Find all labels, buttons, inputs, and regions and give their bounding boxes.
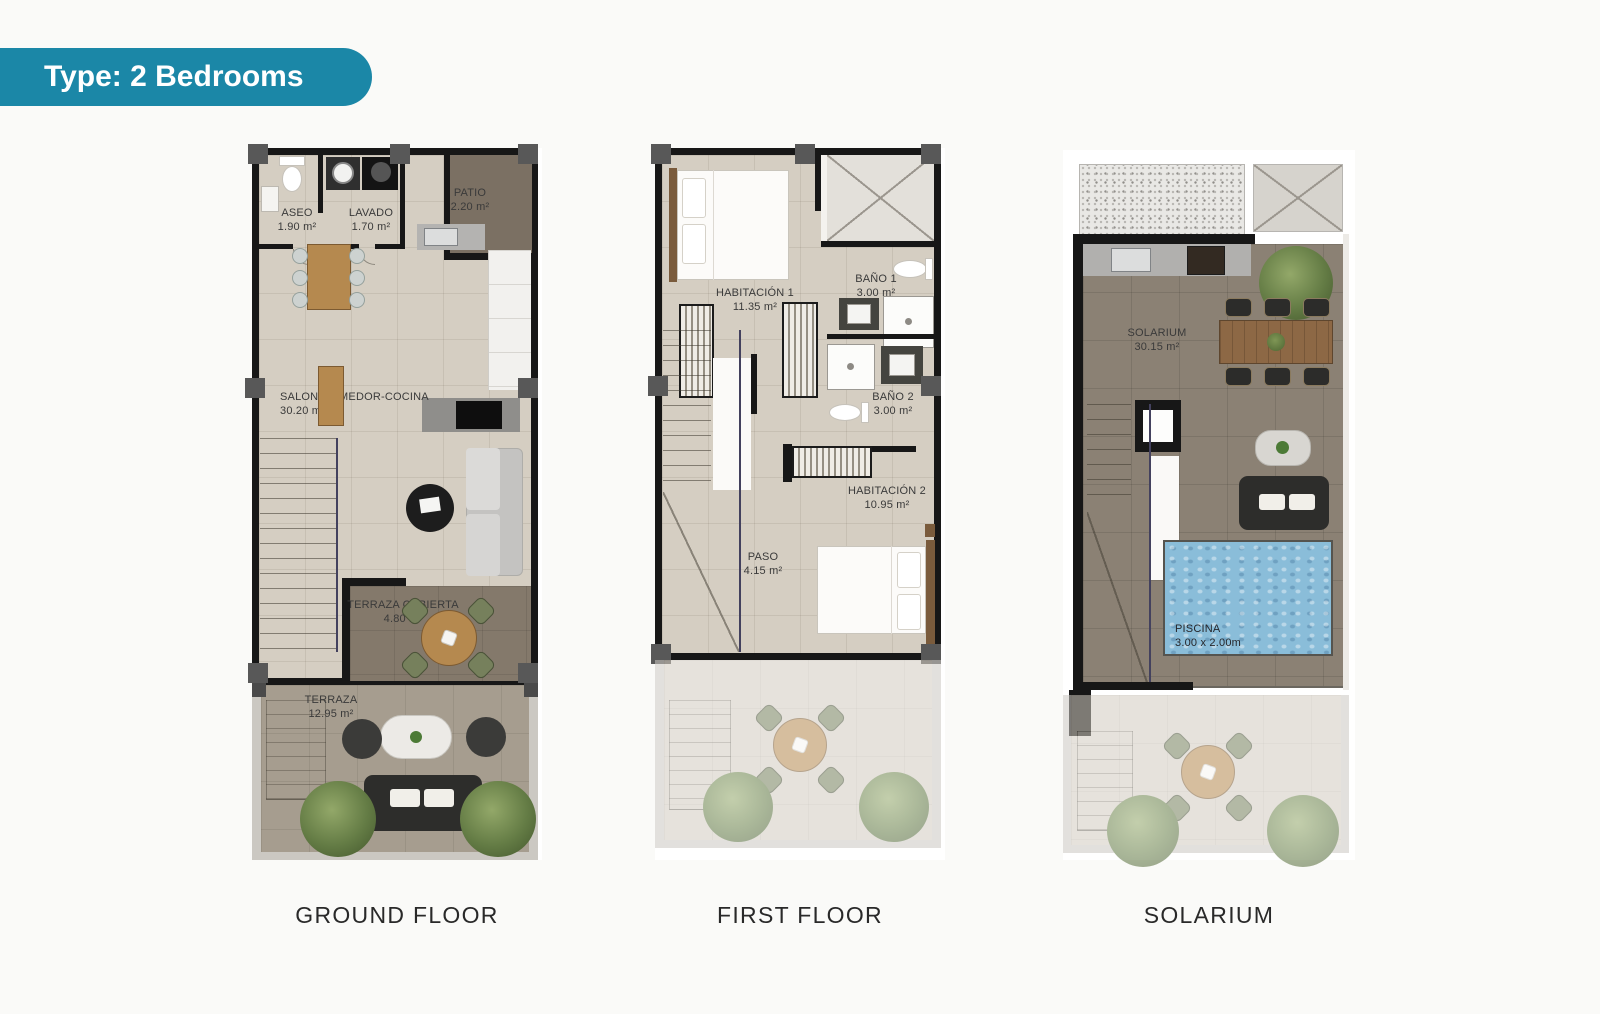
toilet-tank bbox=[279, 156, 305, 166]
toilet-bowl bbox=[282, 166, 302, 192]
wall-light bbox=[1343, 234, 1349, 690]
room-area: 1.90 m² bbox=[278, 221, 317, 233]
terrace-wall-light bbox=[655, 660, 664, 848]
pillar bbox=[648, 376, 668, 396]
toilet-bowl bbox=[893, 260, 927, 278]
terrace-wall bbox=[342, 578, 350, 680]
staircase bbox=[1087, 404, 1131, 508]
void-area bbox=[1253, 164, 1343, 232]
sofa-cushion bbox=[424, 789, 454, 807]
type-badge-label: Type: 2 Bedrooms bbox=[44, 60, 304, 93]
outdoor-sink bbox=[1111, 248, 1151, 272]
washbasin bbox=[847, 304, 871, 324]
shower-drain bbox=[847, 363, 854, 370]
terrace-section: TERRAZA 12.95 m² bbox=[252, 685, 538, 860]
wall-aseo bbox=[318, 155, 323, 213]
first-floor-plan: HABITACIÓN 1 11.35 m² BAÑO 1 3.00 m² BAÑ… bbox=[655, 148, 945, 860]
dining-chair bbox=[349, 292, 365, 308]
room-area: 11.35 m² bbox=[733, 301, 777, 313]
dining-chair bbox=[349, 270, 365, 286]
dining-chair bbox=[1225, 367, 1252, 386]
wall-segment bbox=[1073, 234, 1255, 244]
dining-chair bbox=[1303, 367, 1330, 386]
pillar bbox=[518, 663, 538, 683]
wall-segment bbox=[872, 446, 916, 452]
exterior-wall bbox=[1073, 234, 1083, 690]
gravel-area bbox=[1079, 164, 1245, 236]
ghost-terrace bbox=[655, 660, 941, 860]
duvet-line bbox=[713, 170, 714, 280]
stair-rail bbox=[336, 438, 338, 652]
room-area: 3.00 m² bbox=[874, 405, 913, 417]
wardrobe bbox=[782, 302, 818, 398]
caption-ground-floor: GROUND FLOOR bbox=[252, 902, 542, 929]
skylight bbox=[1143, 410, 1173, 442]
pillar bbox=[795, 144, 815, 164]
toilet-bowl bbox=[829, 404, 861, 421]
room-name: SALON-COMEDOR-COCINA bbox=[280, 391, 429, 403]
terrace-pillar bbox=[252, 683, 266, 697]
caption-first-floor: FIRST FLOOR bbox=[655, 902, 945, 929]
dryer-drum bbox=[371, 162, 391, 182]
dining-chair bbox=[292, 270, 308, 286]
pillow bbox=[682, 224, 706, 264]
plant bbox=[1107, 795, 1179, 867]
pillow bbox=[897, 594, 921, 630]
outdoor-counter bbox=[1083, 244, 1251, 276]
wall-segment bbox=[783, 444, 792, 482]
room-area: 10.95 m² bbox=[864, 499, 909, 511]
dining-chair bbox=[292, 292, 308, 308]
wall-segment bbox=[821, 241, 934, 247]
room-label-piscina: PISCINA 3.00 x 2.00m bbox=[1175, 622, 1295, 651]
pillar bbox=[921, 376, 941, 396]
washbasin bbox=[889, 354, 915, 376]
pillar bbox=[921, 144, 941, 164]
pouf bbox=[342, 719, 382, 759]
stair-rail bbox=[739, 330, 741, 652]
staircase bbox=[260, 438, 338, 652]
stair-void bbox=[713, 358, 751, 490]
corridor-wardrobe bbox=[792, 446, 872, 478]
room-label-solarium: SOLARIUM 30.15 m² bbox=[1105, 326, 1209, 355]
pillar bbox=[651, 144, 671, 164]
dining-chair bbox=[1264, 367, 1291, 386]
sofa-cushion bbox=[390, 789, 420, 807]
room-name: HABITACIÓN 2 bbox=[848, 485, 926, 497]
pouf bbox=[466, 717, 506, 757]
sofa-cushion bbox=[1289, 494, 1315, 510]
wall-segment bbox=[259, 244, 293, 249]
room-name: PISCINA bbox=[1175, 623, 1220, 635]
wall-segment bbox=[375, 244, 405, 249]
plant bbox=[460, 781, 536, 857]
pillar bbox=[390, 144, 410, 164]
nightstand bbox=[925, 524, 935, 537]
plant bbox=[1267, 795, 1339, 867]
room-name: BAÑO 1 bbox=[855, 273, 897, 285]
bed-headboard bbox=[669, 168, 677, 282]
dining-chair bbox=[292, 248, 308, 264]
room-name: ASEO bbox=[281, 207, 312, 219]
plant bbox=[300, 781, 376, 857]
dining-chair bbox=[1264, 298, 1291, 317]
room-name: TERRAZA bbox=[305, 694, 358, 706]
ghost-terrace bbox=[1063, 695, 1355, 860]
dining-chair bbox=[1225, 298, 1252, 317]
room-label-salon: SALON-COMEDOR-COCINA 30.20 m² bbox=[280, 390, 450, 419]
shower-drain bbox=[905, 318, 912, 325]
staircase-down bbox=[663, 492, 739, 652]
terrace-wall bbox=[342, 578, 406, 586]
washing-machine-drum bbox=[332, 162, 354, 184]
bed-headboard bbox=[926, 540, 935, 644]
room-area: 1.70 m² bbox=[352, 221, 391, 233]
stair-rail bbox=[1149, 404, 1151, 688]
pillar bbox=[245, 378, 265, 398]
caption-solarium: SOLARIUM bbox=[1063, 902, 1355, 929]
room-name: BAÑO 2 bbox=[872, 391, 914, 403]
terrace-pillar bbox=[524, 683, 538, 697]
pillow bbox=[682, 178, 706, 218]
kitchen-cabinets bbox=[488, 250, 531, 390]
room-name: LAVADO bbox=[349, 207, 393, 219]
wall-segment bbox=[815, 155, 821, 211]
toilet-tank bbox=[861, 402, 869, 423]
terrace-wall-light bbox=[932, 660, 941, 848]
dining-table bbox=[307, 244, 351, 310]
room-area: 4.15 m² bbox=[744, 565, 783, 577]
type-badge: Type: 2 Bedrooms bbox=[0, 48, 372, 106]
staircase-up bbox=[663, 330, 711, 486]
dining-chair bbox=[1303, 298, 1330, 317]
table-plant bbox=[410, 731, 422, 743]
cooktop bbox=[456, 401, 502, 429]
coffee-table-decor bbox=[419, 497, 441, 514]
pillar bbox=[248, 144, 268, 164]
void-area bbox=[827, 155, 934, 241]
room-label-patio: PATIO 2.20 m² bbox=[430, 186, 510, 215]
room-label-aseo: ASEO 1.90 m² bbox=[266, 206, 328, 235]
room-area: 3.00 x 2.00m bbox=[1175, 637, 1241, 649]
solarium-plan: SOLARIUM 30.15 m² PISCINA 3.00 x 2.00m bbox=[1063, 150, 1355, 860]
room-area: 12.95 m² bbox=[308, 708, 353, 720]
terrace-wall-light bbox=[252, 685, 261, 860]
pillow bbox=[897, 552, 921, 588]
dining-chair bbox=[349, 248, 365, 264]
bbq-grill bbox=[1187, 246, 1225, 275]
room-area: 30.15 m² bbox=[1134, 341, 1179, 353]
staircase bbox=[1087, 512, 1149, 688]
pillar bbox=[518, 144, 538, 164]
toilet-tank bbox=[925, 258, 933, 280]
kitchen-sink bbox=[424, 228, 458, 246]
sofa-cushion bbox=[466, 514, 500, 576]
sideboard bbox=[318, 366, 344, 426]
room-label-lavado: LAVADO 1.70 m² bbox=[338, 206, 404, 235]
room-name: PATIO bbox=[454, 187, 486, 199]
wall-segment bbox=[751, 354, 757, 414]
pool: PISCINA 3.00 x 2.00m bbox=[1163, 540, 1333, 656]
wall-segment bbox=[1073, 682, 1193, 690]
wall-segment bbox=[827, 334, 934, 339]
room-name: HABITACIÓN 1 bbox=[716, 287, 794, 299]
room-label-habitacion2: HABITACIÓN 2 10.95 m² bbox=[833, 484, 941, 513]
room-label-terraza: TERRAZA 12.95 m² bbox=[276, 693, 386, 722]
wall-thin bbox=[1193, 686, 1343, 688]
room-name: SOLARIUM bbox=[1127, 327, 1186, 339]
terrace-wall-light bbox=[1063, 695, 1071, 853]
table-plant bbox=[1267, 333, 1285, 351]
sofa-cushion bbox=[1259, 494, 1285, 510]
room-name: PASO bbox=[748, 551, 779, 563]
pillar bbox=[518, 378, 538, 398]
sofa-cushion bbox=[466, 448, 500, 510]
terrace-wall-light bbox=[1341, 695, 1349, 853]
plant bbox=[703, 772, 773, 842]
pillar bbox=[248, 663, 268, 683]
room-area: 2.20 m² bbox=[451, 201, 490, 213]
duvet-line bbox=[891, 546, 892, 634]
plant bbox=[859, 772, 929, 842]
table-plant bbox=[1276, 441, 1289, 454]
ground-floor-plan: PATIO 2.20 m² ASEO 1.90 m² LAVADO 1.70 m… bbox=[252, 148, 542, 860]
